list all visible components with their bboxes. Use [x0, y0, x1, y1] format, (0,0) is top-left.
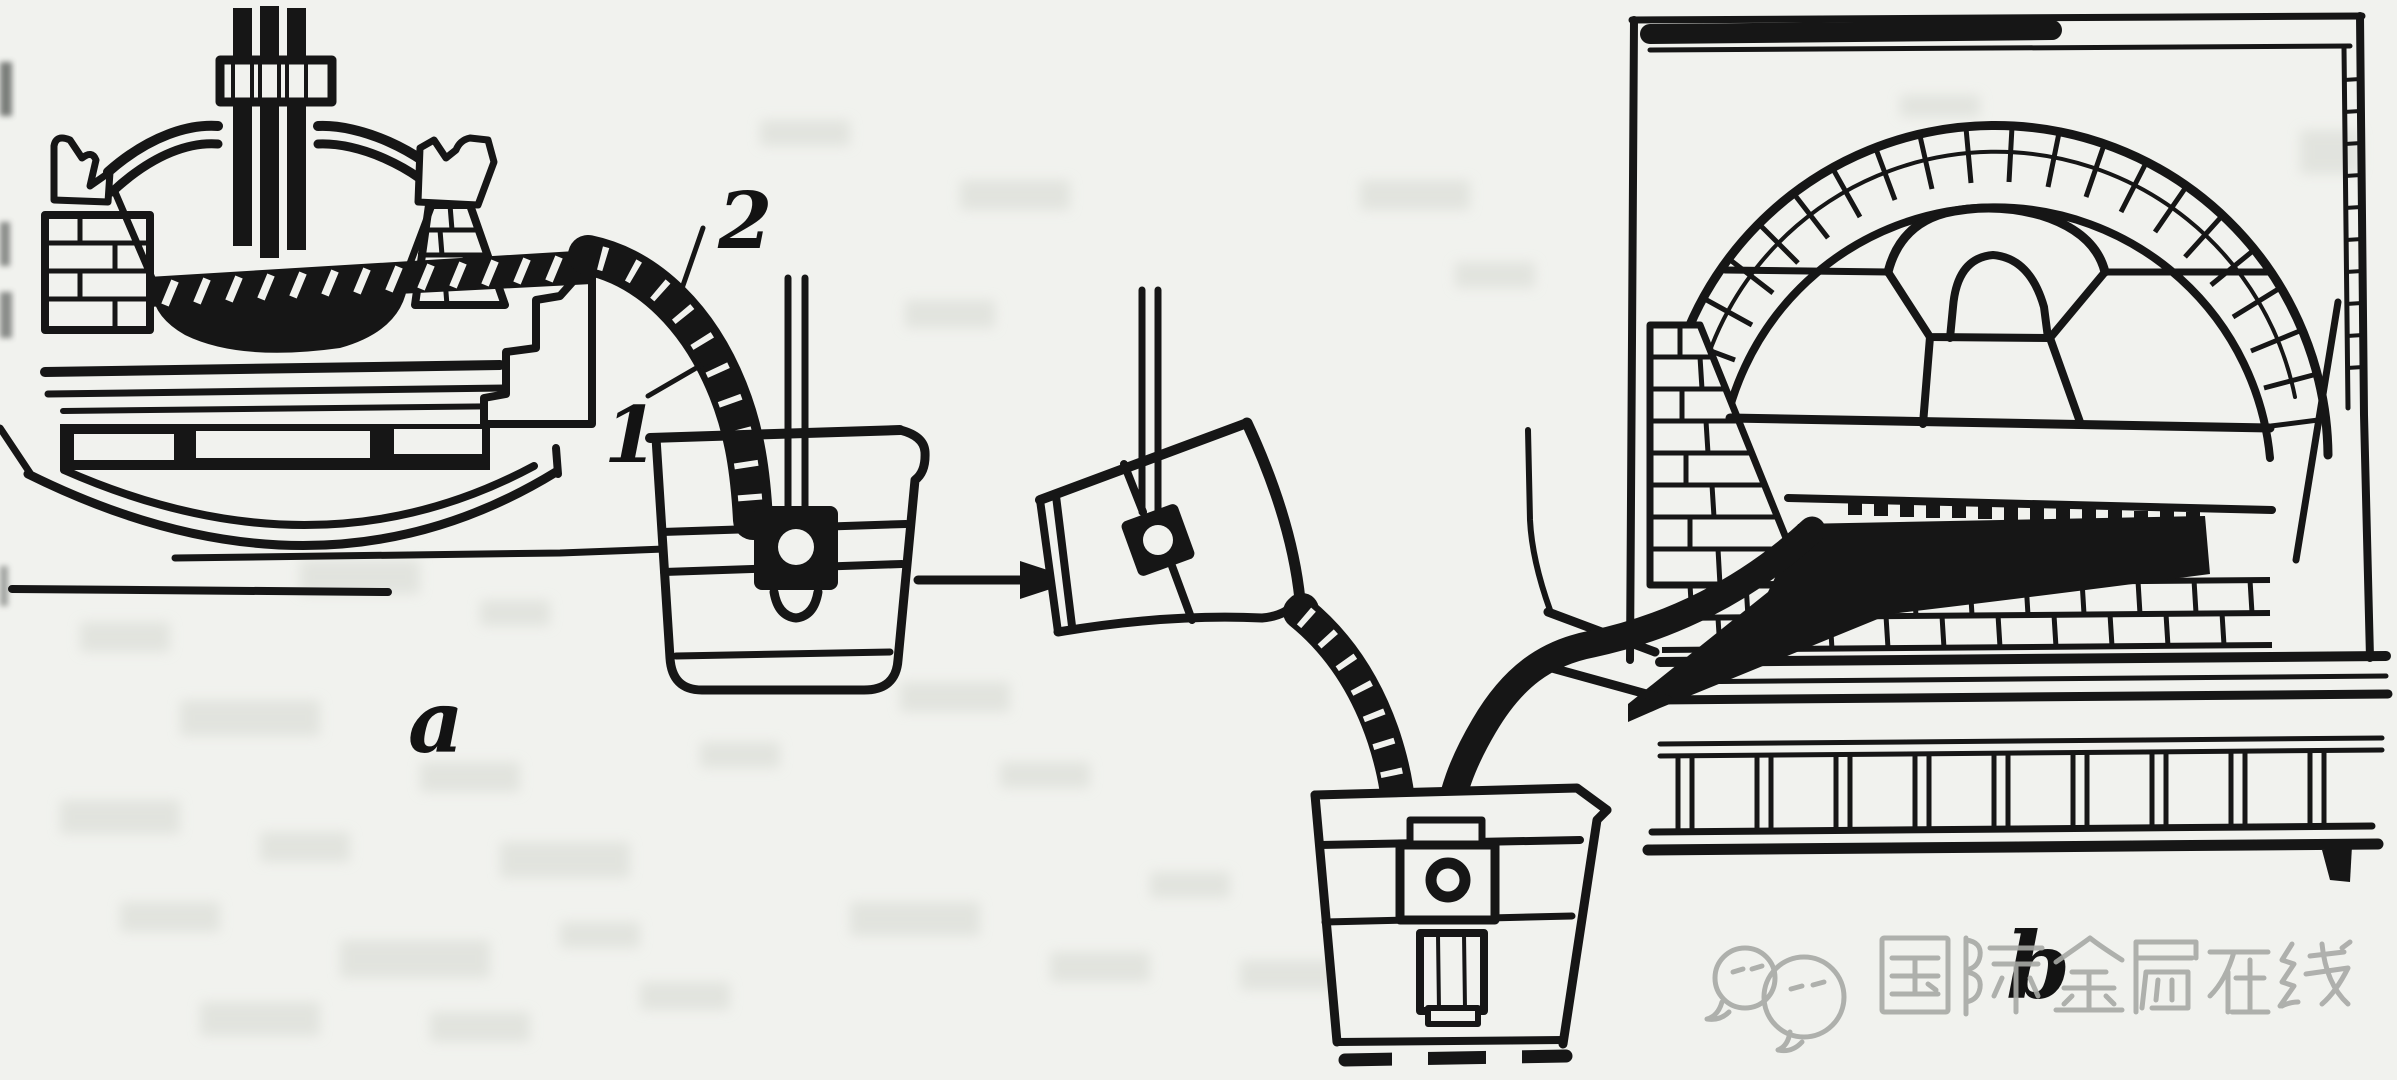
callout-1-label: 1 — [604, 390, 658, 481]
shell-right-wall-inner — [2344, 48, 2348, 408]
trunnion-pin-hole — [778, 529, 814, 565]
shell-band — [45, 365, 500, 372]
electric-arc-furnace — [0, 6, 690, 592]
bottom-nozzle — [1420, 933, 1484, 1024]
bottom-pour-ladle — [1315, 788, 1607, 1066]
shell-band — [63, 406, 520, 411]
shell-top-outer — [1632, 16, 2362, 20]
base-skid — [1337, 1040, 1566, 1066]
left-horn — [54, 138, 110, 202]
furnace-roof — [108, 126, 452, 202]
open-hearth-furnace — [1628, 16, 2388, 882]
right-foot — [2322, 846, 2352, 882]
panel-a-label: a — [408, 672, 464, 773]
scan-edge-smudges — [0, 62, 12, 606]
scanned-figure-page: 2 1 a — [0, 0, 2397, 1080]
foundation — [1648, 656, 2388, 882]
leader-line-2 — [680, 228, 703, 294]
keyhole-arch — [1950, 255, 2048, 338]
rocker-arc-outer — [28, 472, 556, 546]
trunnion-pin-ring — [1431, 863, 1465, 897]
shell-band — [48, 388, 505, 394]
ladle-inner-bottom — [676, 652, 890, 656]
electrode-holder — [220, 60, 332, 102]
teeming-ladle-tilted — [1040, 290, 1300, 632]
spout-bracket — [1528, 430, 1550, 610]
tilted-trunnion-pin-hole — [1143, 525, 1173, 555]
diagram-canvas: 2 1 a — [0, 0, 2397, 1080]
right-horn — [418, 138, 494, 205]
watermark-text: 国际金属在线 — [1690, 930, 2330, 1050]
callout-2-label: 2 — [717, 176, 772, 267]
ground-line — [175, 548, 690, 558]
central-port — [1888, 208, 2105, 424]
brick-arch — [1662, 125, 2328, 462]
colonnade — [1648, 751, 2378, 882]
rocker-left-edge — [0, 428, 30, 473]
rocker-right-tick — [556, 448, 558, 474]
shell-top-heavy — [1650, 30, 2052, 34]
ground-line — [12, 589, 388, 592]
electrodes — [220, 6, 332, 258]
basin-floor-line — [1730, 418, 2270, 428]
shell-left-wall — [1630, 20, 1634, 660]
shell-top-inner — [1650, 46, 2350, 50]
hearth-sill-line — [1725, 270, 2268, 272]
